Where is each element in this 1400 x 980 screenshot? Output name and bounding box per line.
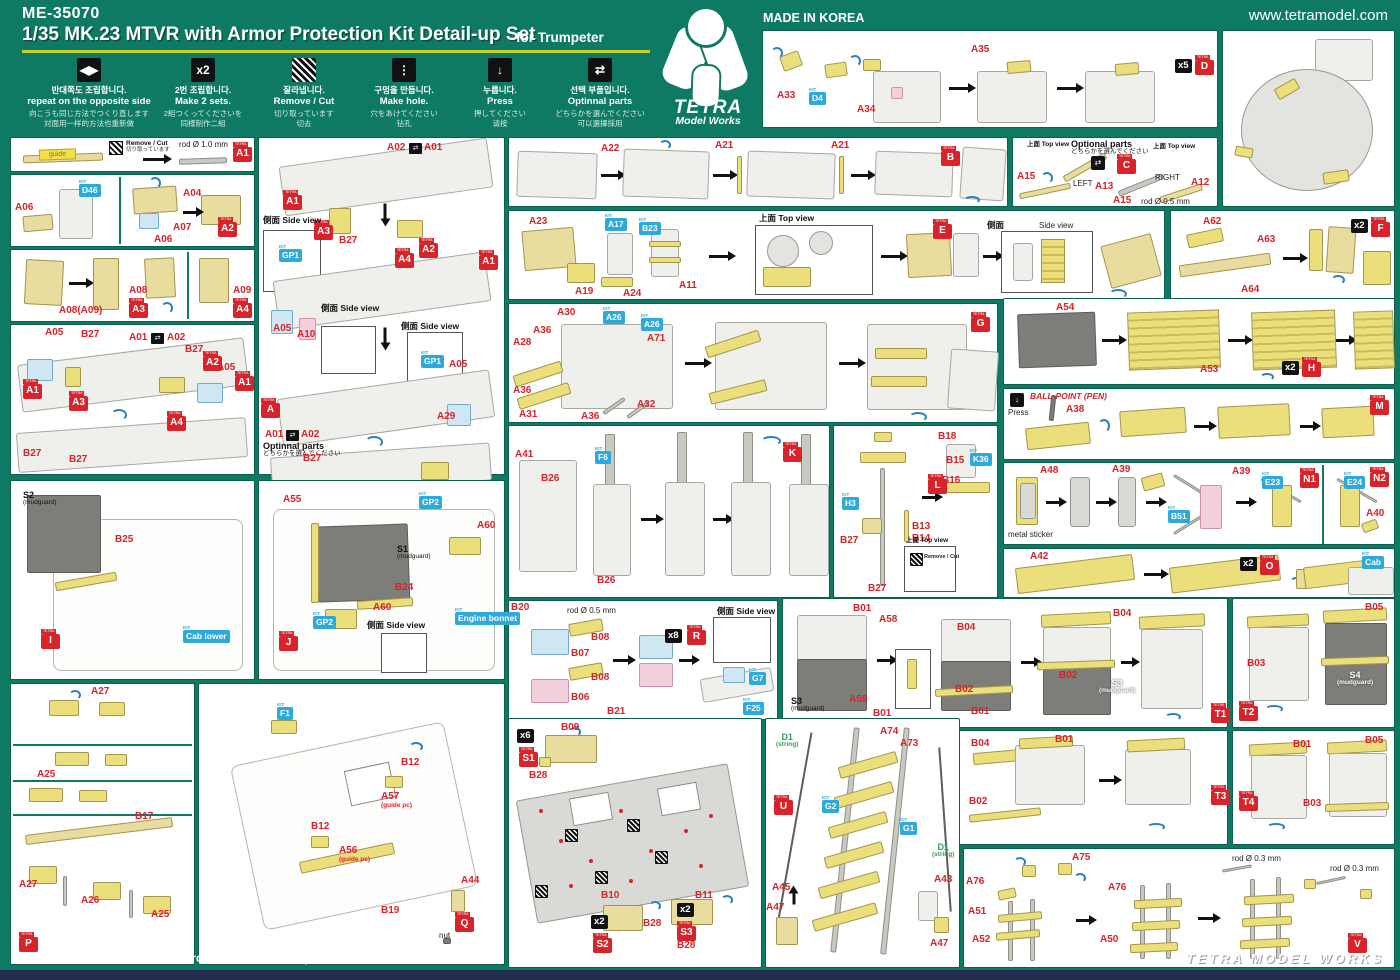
part-label: A05 <box>449 360 467 371</box>
section-chip: TETRAN1 <box>1300 468 1319 488</box>
chip-letter: A4 <box>233 303 252 318</box>
part-label: A15 <box>1017 172 1035 183</box>
multiplier-chip: x5 <box>1175 59 1192 73</box>
kit-part-name: H3 <box>842 497 859 510</box>
chip-letter: T2 <box>1239 706 1258 721</box>
view-label: 側面 Side view <box>367 621 425 630</box>
view-label: 上面 Top view <box>759 214 814 223</box>
part-label: A59 <box>849 695 867 706</box>
chip-letter: F <box>1371 222 1390 237</box>
panel-t2: B05B03S4(mudguard)TETRAT2 <box>1232 598 1395 728</box>
part-label: A01 <box>424 143 442 154</box>
part-shape <box>539 757 551 767</box>
chip-letter: A3 <box>69 396 88 411</box>
part-shape <box>797 615 867 661</box>
mirror-icon: ◀▶ <box>77 58 101 82</box>
mirror-icon: ⇄ <box>151 333 164 344</box>
part-shape <box>1353 310 1395 369</box>
chip-letter: A4 <box>167 416 186 431</box>
part-shape <box>161 302 173 314</box>
kit-chip: KITA26 <box>641 313 663 331</box>
part-shape <box>531 629 569 655</box>
part-shape <box>1217 403 1291 439</box>
footer-title: 1/35 MK.23 MTVR with Armor Protection Ki… <box>22 953 333 965</box>
section-chip: TETRAC <box>1117 154 1136 174</box>
part-label: B03 <box>1247 659 1265 670</box>
part-label: A02 <box>387 143 405 154</box>
multiplier-chip: x6 <box>517 729 534 743</box>
part-label: A26 <box>81 896 99 907</box>
part-shape <box>451 890 465 912</box>
part-shape <box>1144 573 1162 576</box>
part-shape <box>105 754 127 766</box>
multiplier-chip: x2 <box>591 915 608 929</box>
cut-icon <box>109 141 123 155</box>
part-shape <box>1309 229 1323 271</box>
part-shape <box>1228 339 1246 342</box>
kit-chip: KITGP1 <box>421 350 444 368</box>
part-label: A04 <box>183 189 201 200</box>
kit-chip: KITB23 <box>639 217 661 235</box>
note-text: Remove / Cut <box>924 555 959 561</box>
part-shape <box>1360 889 1372 899</box>
panel-r: B20rod Ø 0.5 mmB08B07B08B06B21x8TETRAR側面… <box>508 600 778 720</box>
part-shape <box>1194 425 1210 428</box>
panel-t3: B04B01B02TETRAT3 <box>958 730 1228 845</box>
section-chip: TETRAJ <box>279 631 298 651</box>
section-chip: TETRAB <box>941 146 960 166</box>
part-name-label: Optional partsどちらかを選んでください <box>1071 140 1149 156</box>
part-label: A43 <box>934 875 952 886</box>
chip-letter: A <box>261 403 280 418</box>
part-shape <box>1020 483 1036 519</box>
section-chip: TETRAA1 <box>283 190 302 210</box>
part-label: B06 <box>571 693 589 704</box>
part-shape <box>934 917 949 933</box>
part-shape <box>601 174 619 177</box>
kit-chip: KITB51 <box>1168 505 1190 523</box>
section-chip: TETRAA <box>261 398 280 418</box>
chip-letter: P <box>19 937 38 952</box>
part-shape <box>731 482 771 576</box>
part-shape <box>922 496 936 499</box>
part-shape <box>129 890 133 918</box>
part-label: A02 <box>167 333 185 344</box>
part-label: A36 <box>581 412 599 423</box>
part-shape <box>699 864 703 868</box>
part-name-label: S4(mudguard) <box>1337 671 1373 687</box>
part-shape <box>607 233 633 275</box>
section-chip: TETRAL <box>928 474 947 494</box>
part-shape <box>1251 755 1307 819</box>
part-shape <box>1336 339 1350 342</box>
kit-chip: KITGP2 <box>313 611 336 629</box>
part-label: B01 <box>1055 735 1073 746</box>
part-shape <box>809 231 833 255</box>
part-label: B18 <box>938 432 956 443</box>
chip-letter: T4 <box>1239 796 1258 811</box>
section-chip: TETRAA2 <box>218 217 237 237</box>
website-url: www.tetramodel.com <box>1249 7 1388 24</box>
part-shape <box>49 700 79 716</box>
part-shape <box>1236 501 1250 504</box>
part-shape <box>709 814 713 818</box>
part-shape <box>746 150 836 199</box>
part-shape <box>1134 898 1182 909</box>
kit-part-name: Cab lower <box>183 630 230 643</box>
kit-part-name: A26 <box>641 318 663 331</box>
part-shape <box>1074 873 1086 883</box>
section-chip: TETRAA3 <box>129 298 148 318</box>
part-label: B28 <box>643 919 661 930</box>
part-label: B08 <box>591 673 609 684</box>
made-in-text: MADE IN KOREA <box>763 11 864 25</box>
panel-f: A62A63A64x2TETRAF <box>1170 210 1395 300</box>
part-label: B27 <box>69 455 87 466</box>
part-label: B01 <box>873 709 891 720</box>
part-shape <box>947 348 999 411</box>
kit-part-name: E24 <box>1344 476 1365 489</box>
part-shape <box>1242 916 1292 928</box>
part-name-label: S1(mudguard) <box>397 545 431 561</box>
section-chip: TETRAF <box>1371 217 1390 237</box>
part-shape <box>1267 823 1285 831</box>
part-shape <box>589 859 593 863</box>
part-shape <box>907 659 917 689</box>
section-chip: TETRAA3 <box>69 391 88 411</box>
part-shape <box>1200 485 1222 529</box>
part-shape <box>132 185 178 214</box>
section-chip: TETRAK <box>783 442 802 462</box>
kit-part-name: D46 <box>79 184 101 197</box>
part-shape <box>159 377 185 393</box>
part-shape <box>649 849 653 853</box>
part-shape <box>99 702 125 716</box>
part-shape <box>949 87 969 90</box>
part-label: A27 <box>19 880 37 891</box>
part-label: A05 <box>45 328 63 339</box>
part-shape <box>713 518 727 521</box>
part-shape <box>187 252 189 319</box>
part-label: A75 <box>1072 853 1090 864</box>
chip-letter: Q <box>455 917 474 932</box>
part-shape <box>516 151 598 200</box>
part-shape <box>1125 749 1191 805</box>
part-label: B27 <box>81 330 99 341</box>
part-shape <box>603 905 643 931</box>
view-label: 上面 Top view <box>1027 142 1069 149</box>
kit-chip: KITA26 <box>603 306 625 324</box>
part-label: B21 <box>607 707 625 718</box>
part-shape <box>1017 312 1097 369</box>
kit-chip: KITG2 <box>822 795 839 813</box>
part-label: B27 <box>868 584 886 595</box>
part-shape <box>1098 419 1110 433</box>
note-text: rod Ø 0.3 mm <box>1232 855 1281 863</box>
multiplier-chip: x2 <box>1240 557 1257 571</box>
part-shape <box>1241 69 1373 191</box>
footer-brand: TETRA MODEL WORKS <box>1186 951 1384 966</box>
part-shape <box>1186 227 1224 248</box>
chip-letter: N1 <box>1300 473 1319 488</box>
part-label: A52 <box>972 935 990 946</box>
chip-letter: G <box>971 317 990 332</box>
section-chip: TETRAS1 <box>519 747 538 767</box>
part-shape <box>16 417 248 473</box>
part-shape <box>875 348 927 359</box>
part-name-label-sub: (mudguard) <box>1099 688 1135 695</box>
part-label: B12 <box>401 758 419 769</box>
part-label: A21 <box>831 141 849 152</box>
part-shape <box>1019 183 1071 200</box>
part-label: A25 <box>37 770 55 781</box>
view-label: 側面 Side view <box>263 216 321 225</box>
part-shape <box>397 220 423 238</box>
part-shape <box>641 518 657 521</box>
part-label: A31 <box>519 410 537 421</box>
part-shape <box>713 174 731 177</box>
chip-letter: T3 <box>1211 790 1230 805</box>
part-shape <box>1325 226 1356 274</box>
panel-d: A33KITD4A34A35x5TETRAD <box>762 30 1218 128</box>
panel-c: 上面 Top viewOptional partsどちらかを選んでください⇄TE… <box>1012 137 1218 207</box>
mirror-icon: ⇄ <box>409 143 422 154</box>
part-shape <box>977 71 1047 123</box>
kit-chip: KITK36 <box>970 448 992 466</box>
remove-cut-icon <box>627 819 640 832</box>
part-shape <box>1321 406 1374 439</box>
part-shape <box>601 277 633 287</box>
part-label: B11 <box>695 891 713 902</box>
remove-cut-icon <box>565 829 578 842</box>
view-label: 側面 Side view <box>321 304 379 313</box>
part-shape <box>69 690 81 700</box>
chip-letter: M <box>1370 400 1389 415</box>
part-shape <box>824 62 848 79</box>
remove-cut-icon <box>595 871 608 884</box>
instruction-icon: ↓ <box>1010 393 1024 407</box>
part-name-label-sub: どちらかを選んでください <box>263 451 341 458</box>
section-chip: TETRAA2 <box>419 238 438 258</box>
part-shape <box>197 383 223 403</box>
part-shape <box>512 361 563 388</box>
part-shape <box>1348 567 1394 595</box>
part-shape <box>834 781 895 809</box>
tool-note: BALL-POINT (PEN) <box>1030 392 1107 401</box>
part-shape <box>969 807 1041 822</box>
kit-chip: KITCab <box>1362 551 1384 569</box>
part-shape <box>1147 823 1165 831</box>
part-shape <box>230 721 478 931</box>
part-shape <box>629 879 633 883</box>
section-chip: TETRAD <box>1195 55 1214 75</box>
part-label: A35 <box>971 45 989 56</box>
part-shape <box>13 814 192 816</box>
part-shape <box>1025 422 1091 451</box>
note-text: rod Ø 1.0 mm <box>179 141 228 149</box>
section-chip: TETRAU <box>774 795 793 815</box>
part-shape <box>659 140 671 150</box>
note-text: LEFT <box>1073 180 1093 188</box>
panel-m: ↓PressBALL-POINT (PEN)A38TETRAM <box>1003 388 1395 460</box>
part-label: A19 <box>575 287 593 298</box>
remove-cut-icon <box>535 885 548 898</box>
part-shape <box>384 204 387 220</box>
part-shape <box>1015 745 1085 805</box>
panel-j: A55KITGP2A60S1(mudguard)B24A60KITGP2側面 S… <box>258 480 505 680</box>
kit-part-name: K36 <box>970 453 992 466</box>
panel-tank <box>1222 30 1395 207</box>
part-label: B02 <box>1059 671 1077 682</box>
part-shape <box>1118 477 1136 527</box>
instruction-sheet: ME-35070 1/35 MK.23 MTVR with Armor Prot… <box>0 0 1400 980</box>
part-label: B04 <box>957 623 975 634</box>
part-shape <box>421 462 449 480</box>
part-label: B20 <box>511 603 529 614</box>
part-shape <box>1198 917 1214 920</box>
part-shape <box>1041 172 1053 184</box>
kit-chip: KITF1 <box>277 702 293 720</box>
part-name-label-sub: (mudguard) <box>1337 680 1373 687</box>
chip-letter: A1 <box>283 195 302 210</box>
view-label: 上面 Top view <box>906 538 948 545</box>
part-shape <box>55 752 89 766</box>
part-shape <box>959 147 1007 202</box>
section-chip: TETRAR <box>687 625 706 645</box>
part-label: A22 <box>601 144 619 155</box>
part-shape <box>385 776 403 788</box>
part-label: A23 <box>529 217 547 228</box>
multiplier-chip: x8 <box>665 629 682 643</box>
panel-g: A30A36A28KITA26KITA26A71A36A31A36A32TETR… <box>508 303 998 423</box>
part-shape <box>909 412 927 422</box>
part-label: A41 <box>515 450 533 461</box>
kit-part-name: Engine bonnet <box>455 612 520 625</box>
chip-letter: L <box>928 479 947 494</box>
part-label: B01 <box>1293 740 1311 751</box>
section-chip: TETRAV <box>1348 933 1367 953</box>
part-shape <box>539 809 543 813</box>
part-shape <box>998 911 1043 923</box>
part-label: B12 <box>311 822 329 833</box>
hole-icon: ⋮ <box>392 58 416 82</box>
part-shape <box>1222 864 1252 872</box>
kit-chip: KITA17 <box>605 213 627 231</box>
part-shape <box>1265 705 1283 713</box>
part-shape <box>593 484 631 576</box>
part-label: A51 <box>968 907 986 918</box>
part-shape <box>771 47 783 59</box>
for-brand-text: for Trumpeter <box>516 30 604 45</box>
kit-chip: KITE23 <box>1262 471 1283 489</box>
section-chip: TETRAA1 <box>233 142 252 162</box>
chip-letter: A2 <box>419 243 438 258</box>
part-shape <box>69 282 87 285</box>
part-shape <box>1007 60 1032 74</box>
part-shape <box>684 829 688 833</box>
part-label: A33 <box>777 91 795 102</box>
part-shape <box>24 259 64 306</box>
multiplier-chip: x2 <box>1351 219 1368 233</box>
section-chip: TETRAN2 <box>1370 467 1389 487</box>
part-label: B05 <box>1365 736 1383 747</box>
chip-letter: A3 <box>314 225 333 240</box>
part-shape <box>1141 629 1203 709</box>
part-shape <box>721 895 733 905</box>
part-label: A08(A09) <box>59 306 102 317</box>
part-label: A71 <box>647 334 665 345</box>
section-chip: TETRAH <box>1302 357 1321 377</box>
part-shape <box>1165 713 1181 721</box>
part-shape <box>65 367 81 387</box>
part-shape <box>941 619 1011 663</box>
part-shape <box>111 409 127 421</box>
kit-part-name: GP1 <box>279 249 302 262</box>
logo-shape <box>685 6 727 48</box>
section-chip: TETRAT3 <box>1211 785 1230 805</box>
part-label: A12 <box>1191 178 1209 189</box>
section-chip: TETRAP <box>19 932 38 952</box>
panel-a1: guideRemove / Cut切り取っていますrod Ø 1.0 mmTET… <box>10 137 255 172</box>
chip-letter: I <box>41 634 60 649</box>
part-label: B03 <box>1303 799 1321 810</box>
part-label: B27 <box>339 236 357 247</box>
panel-a2: KITD46A06A04A07A06TETRAA2 <box>10 174 255 247</box>
part-shape <box>1013 243 1033 281</box>
part-shape <box>677 432 687 484</box>
part-shape <box>311 836 329 848</box>
part-shape <box>311 523 319 603</box>
panel-a34: A08(A09)A08TETRAA3A09TETRAA4 <box>10 249 255 322</box>
chip-letter: C <box>1117 159 1136 174</box>
part-label: A06 <box>15 203 33 214</box>
part-label: A05 <box>217 363 235 374</box>
part-shape <box>1132 920 1180 931</box>
part-label: A60 <box>373 603 391 614</box>
kit-chip: KITG7 <box>749 667 766 685</box>
part-label: A54 <box>1056 303 1074 314</box>
part-shape <box>1100 233 1162 289</box>
part-shape <box>144 257 176 299</box>
note-text: nut <box>439 932 450 940</box>
part-label: A01 <box>129 333 147 344</box>
kit-part-name: Cab <box>1362 556 1384 569</box>
chip-letter: J <box>279 636 298 651</box>
part-label: A07 <box>173 223 191 234</box>
part-shape <box>964 196 980 204</box>
part-label: A76 <box>966 877 984 888</box>
part-label: A76 <box>1108 883 1126 894</box>
part-label: A48 <box>1040 466 1058 477</box>
note-text: Press <box>1008 409 1028 417</box>
kit-part-name: F1 <box>277 707 293 720</box>
part-shape <box>1041 239 1065 283</box>
note-text: rod Ø 0.3 mm <box>1330 865 1379 873</box>
kit-chip: KITG1 <box>900 817 917 835</box>
kit-chip: KITD4 <box>809 87 826 105</box>
kit-part-name: F25 <box>743 702 764 715</box>
panel-t4: B05B01B03TETRAT4 <box>1232 730 1395 845</box>
part-label: B09 <box>561 723 579 734</box>
part-shape <box>1141 472 1166 491</box>
remove-cut-icon <box>910 553 923 566</box>
view-label: 上面 Top view <box>1153 144 1195 151</box>
part-label: A39 <box>1112 465 1130 476</box>
part-shape <box>763 267 811 287</box>
part-shape <box>381 633 427 673</box>
part-shape <box>1102 339 1120 342</box>
part-shape <box>685 362 705 365</box>
